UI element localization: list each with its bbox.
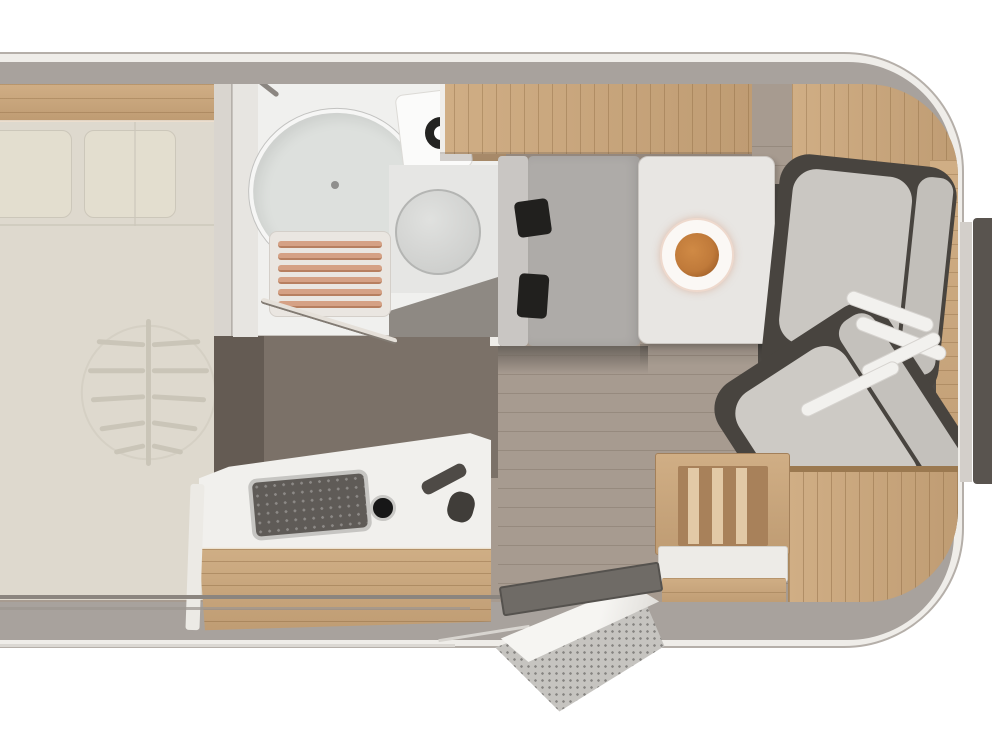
bench-shadow <box>498 346 648 374</box>
leaf-pattern <box>76 310 221 475</box>
pillow-left <box>0 130 72 218</box>
grate-slat <box>278 289 382 296</box>
shower-grate <box>269 231 391 317</box>
grate-slat <box>278 253 382 260</box>
bedspread-seam <box>134 122 136 226</box>
right-edge-trim <box>960 222 972 482</box>
toilet-bowl <box>395 189 481 275</box>
bed-bathroom-wall <box>214 84 232 342</box>
hob-knob <box>370 495 396 521</box>
cabinet-seam <box>440 84 445 154</box>
entry-cabinet <box>655 453 790 555</box>
slot-slat <box>688 468 699 544</box>
basin-drain <box>331 181 339 189</box>
wall-rail-dark <box>0 595 500 599</box>
bench-backrest <box>498 156 528 346</box>
grate-slat <box>278 265 382 272</box>
corridor-shadow <box>214 336 264 478</box>
pillow-right <box>84 130 176 218</box>
bench-bracket <box>517 273 550 319</box>
kitchen-sink <box>248 469 373 541</box>
slot-slat <box>712 468 723 544</box>
headboard-shelf <box>0 84 230 122</box>
bench-bracket <box>514 198 553 238</box>
plate-food <box>675 233 719 277</box>
grate-slat <box>278 277 382 284</box>
slot-slat <box>736 468 747 544</box>
right-edge-panel <box>973 218 992 484</box>
grate-slat <box>278 241 382 248</box>
kitchen-drawer-front <box>196 546 494 632</box>
overhead-cabinet <box>440 84 752 154</box>
floorplan-canvas <box>0 0 992 744</box>
body-skirt-line <box>0 644 455 647</box>
wall-rail <box>0 607 470 610</box>
step-drawer <box>662 578 786 602</box>
bedspread-seam <box>0 224 216 226</box>
entry-step-seat <box>658 546 788 582</box>
